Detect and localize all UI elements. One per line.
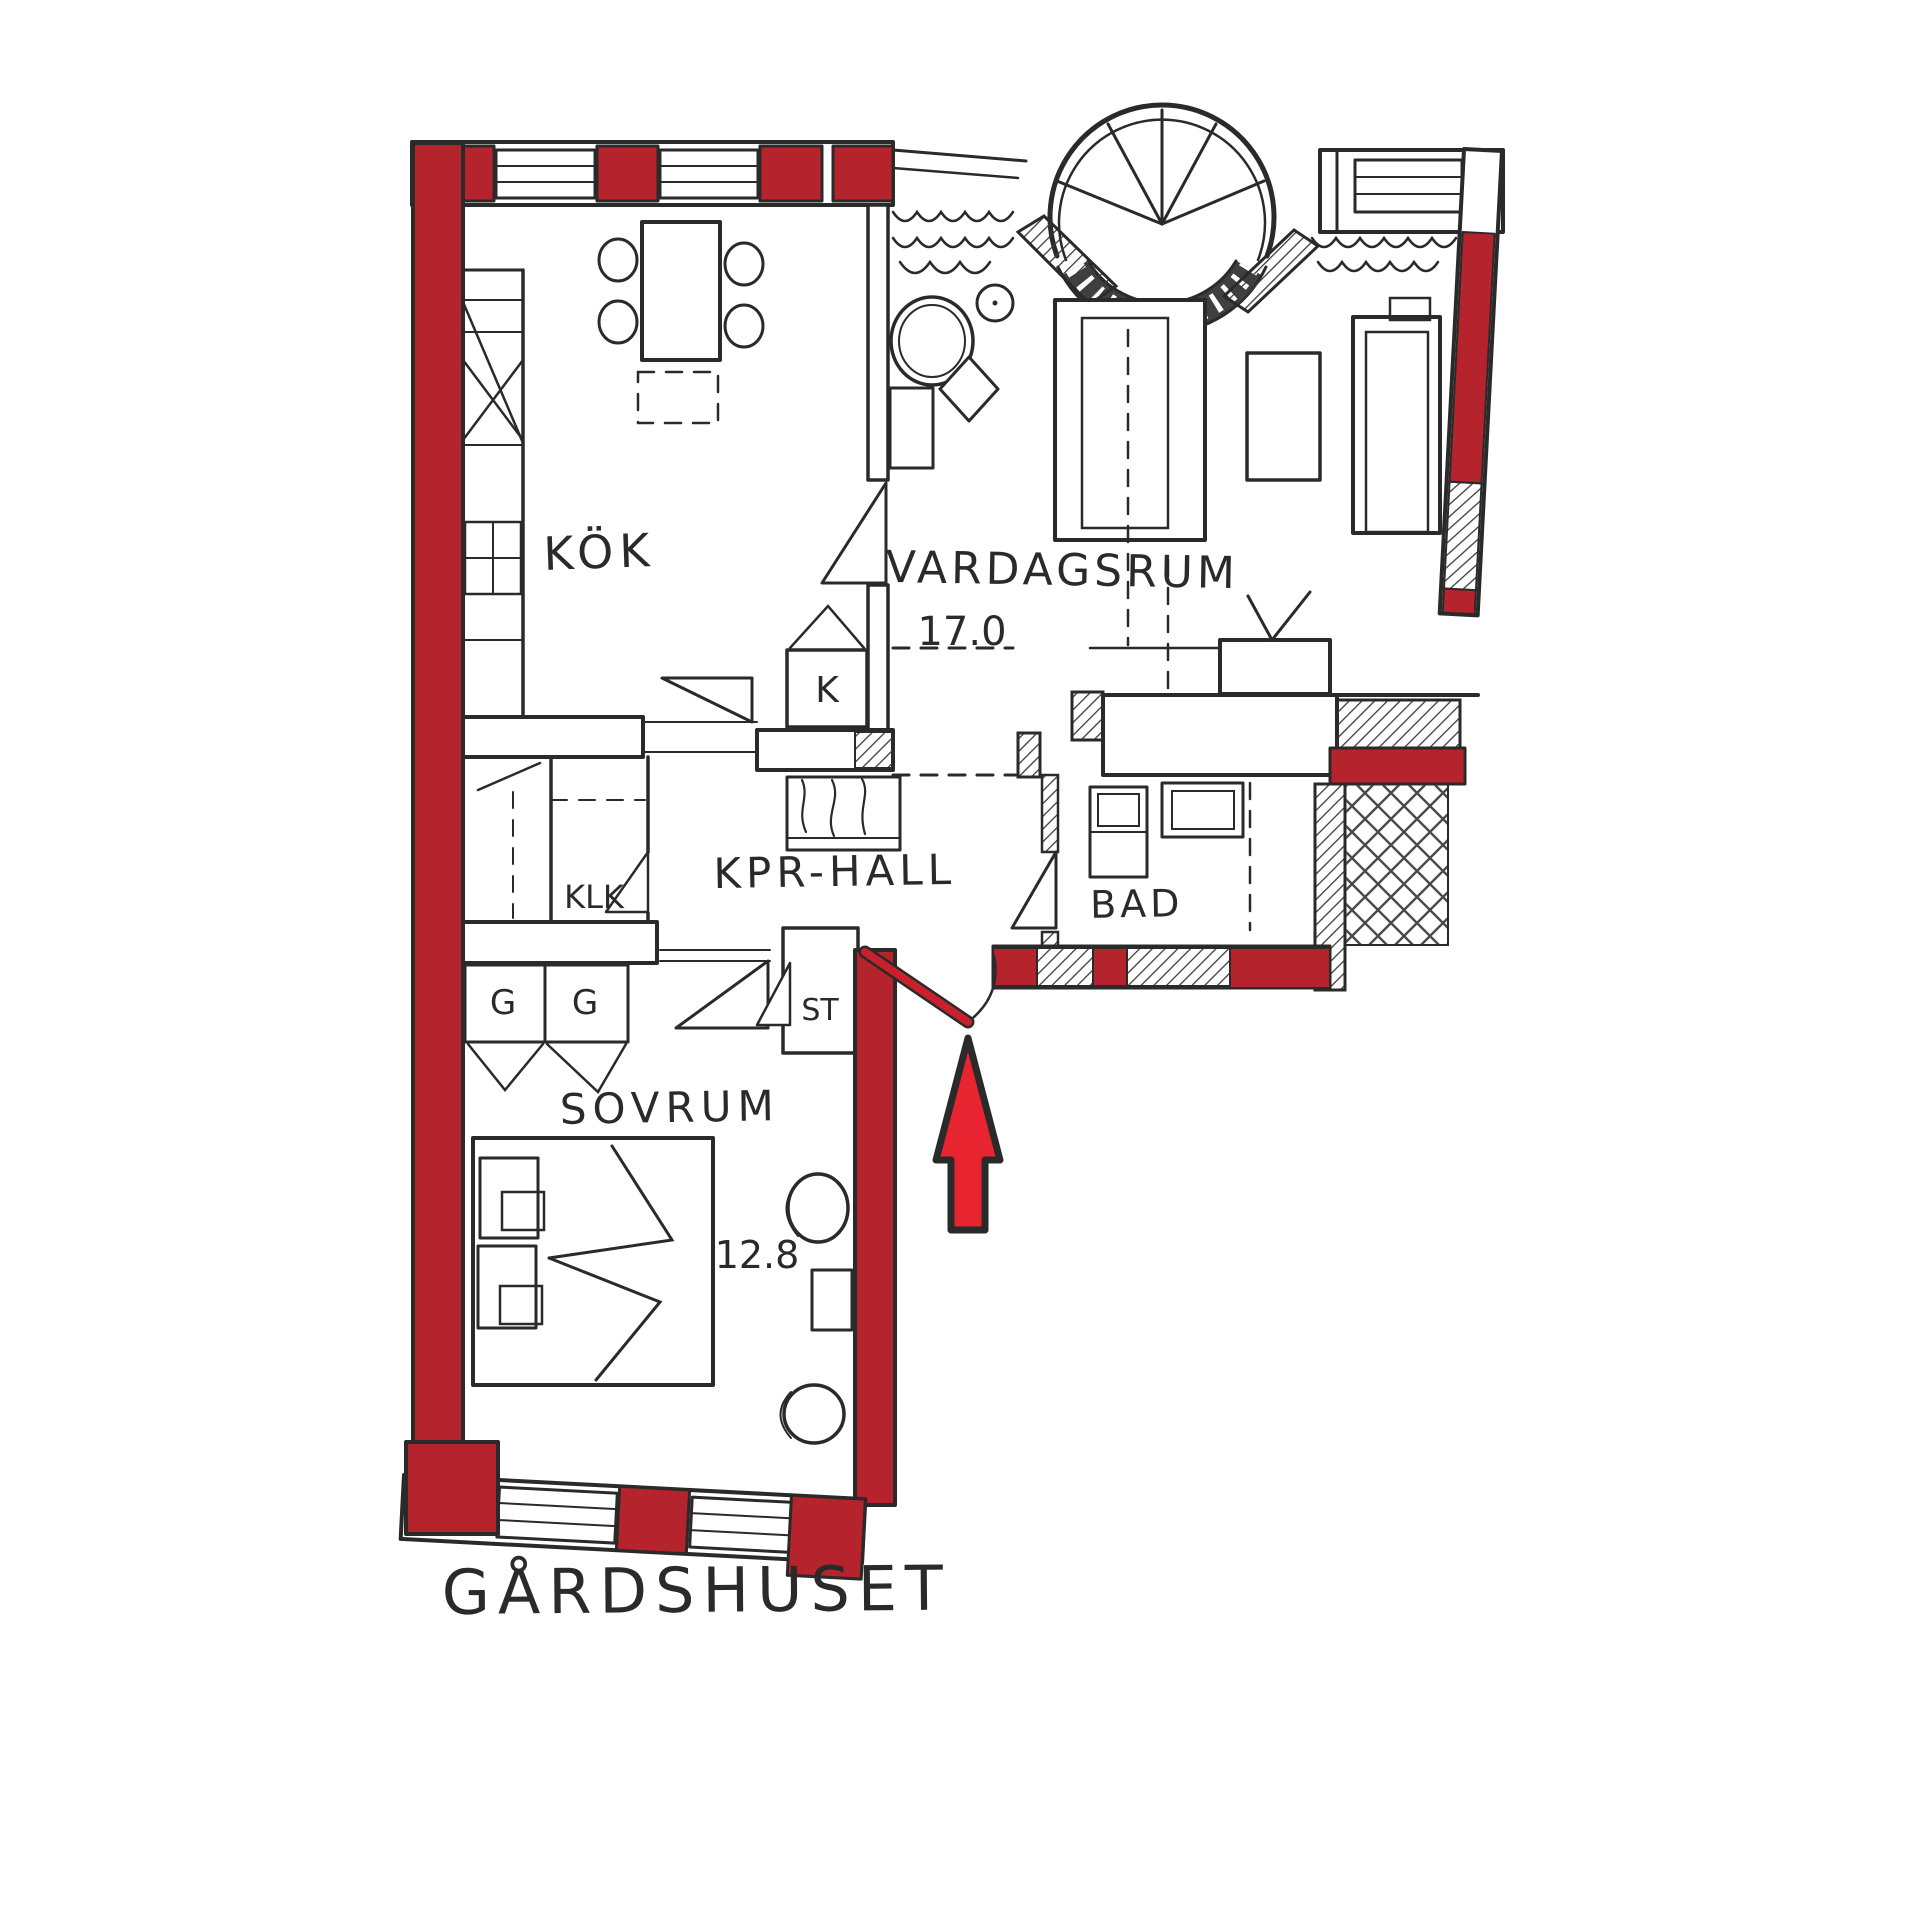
bath-north-wall bbox=[1103, 695, 1337, 775]
kitchen-living-partition-lower bbox=[868, 585, 888, 730]
bath-door bbox=[1012, 852, 1056, 928]
side-table-rect bbox=[890, 388, 933, 468]
pillow bbox=[480, 1158, 538, 1238]
top-wall-pier-2 bbox=[597, 146, 658, 201]
curtain-scallops-left bbox=[893, 212, 1013, 273]
bedroom-door bbox=[676, 961, 768, 1028]
kitchen-window-2 bbox=[660, 150, 758, 198]
fridge-label: K bbox=[815, 670, 840, 711]
bedroom-chair-1 bbox=[787, 1174, 849, 1242]
wall-pier-hatched-1 bbox=[1018, 733, 1040, 777]
washbasin bbox=[1090, 787, 1147, 877]
dining-chair bbox=[599, 239, 637, 281]
dining-table bbox=[599, 222, 763, 423]
washer bbox=[1162, 783, 1243, 837]
kitchen-living-door bbox=[822, 483, 886, 583]
dining-chair bbox=[599, 301, 637, 343]
entrance bbox=[865, 946, 1330, 1022]
bedroom-area: 12.8 bbox=[715, 1233, 800, 1277]
kitchen-south-wall-hatch bbox=[855, 732, 893, 768]
bottom-wall-pier bbox=[616, 1486, 689, 1554]
tv bbox=[1220, 592, 1330, 694]
plan-caption: GÅRDSHUSET bbox=[441, 1552, 951, 1629]
table-extension-dashed bbox=[638, 372, 718, 423]
top-wall-pier-3 bbox=[760, 146, 822, 201]
living-room-label: VARDAGSRUM bbox=[885, 542, 1239, 599]
bedroom-north-wall bbox=[463, 922, 657, 963]
floor-plan: KÖK VARDAGSRUM 17.0 K KPR-HALL KLK BAD S… bbox=[0, 0, 1928, 1920]
walk-in-closet-label: KLK bbox=[564, 878, 625, 916]
bedroom-east-wall bbox=[855, 950, 895, 1505]
cleaning-closet-label: ST bbox=[801, 993, 839, 1028]
tv-antenna bbox=[1272, 592, 1310, 640]
kitchen-living-partition-upper bbox=[868, 205, 888, 480]
tv-antenna bbox=[1248, 596, 1272, 640]
hall bbox=[478, 757, 900, 922]
bottom-wall-corner-sw bbox=[406, 1442, 498, 1534]
kitchen-counter bbox=[463, 270, 523, 717]
coat-rack bbox=[787, 777, 900, 850]
curtain-scallops-right bbox=[1312, 238, 1456, 271]
stair-hatch-band bbox=[1337, 700, 1460, 748]
bathroom-label: BAD bbox=[1090, 881, 1184, 927]
top-wall-pier-4 bbox=[833, 146, 893, 201]
coffee-table bbox=[1247, 353, 1320, 480]
dining-chair bbox=[725, 305, 763, 347]
living-window-right bbox=[1355, 160, 1462, 212]
bedroom-label: SOVRUM bbox=[559, 1081, 780, 1134]
dining-chair bbox=[725, 243, 763, 285]
kitchen-window-1 bbox=[496, 150, 595, 198]
stair-red-band bbox=[1330, 748, 1465, 784]
entrance-arrow-icon bbox=[936, 1038, 1000, 1230]
hall-label: KPR-HALL bbox=[713, 845, 956, 898]
double-bed bbox=[473, 1138, 713, 1385]
turret-wall-left bbox=[1018, 216, 1116, 304]
fridge-door-swing bbox=[790, 606, 864, 648]
wardrobe-g1-doors bbox=[468, 1044, 543, 1090]
kitchen-south-wall-west bbox=[463, 717, 643, 757]
kitchen-hall-door bbox=[662, 678, 752, 722]
living-room-area: 17.0 bbox=[917, 609, 1006, 655]
bedroom-window-1 bbox=[497, 1487, 617, 1543]
left-exterior-wall bbox=[413, 143, 463, 1477]
stove bbox=[465, 522, 521, 594]
entrance-door-arc bbox=[968, 956, 996, 1022]
cleaning-closet bbox=[757, 928, 858, 1053]
sofa-right bbox=[1353, 298, 1440, 533]
side-table-round bbox=[977, 285, 1013, 321]
stairwell-area bbox=[1345, 784, 1448, 945]
bedroom-chair-2 bbox=[781, 1385, 845, 1443]
bedroom-side-table bbox=[812, 1270, 852, 1330]
bath-west-wall-upper bbox=[1042, 775, 1058, 852]
kitchen-label: KÖK bbox=[543, 523, 657, 581]
wardrobe-2-label: G bbox=[572, 983, 598, 1023]
wall-pier-hatched-2 bbox=[1072, 692, 1103, 740]
wardrobe-1-label: G bbox=[490, 983, 516, 1023]
